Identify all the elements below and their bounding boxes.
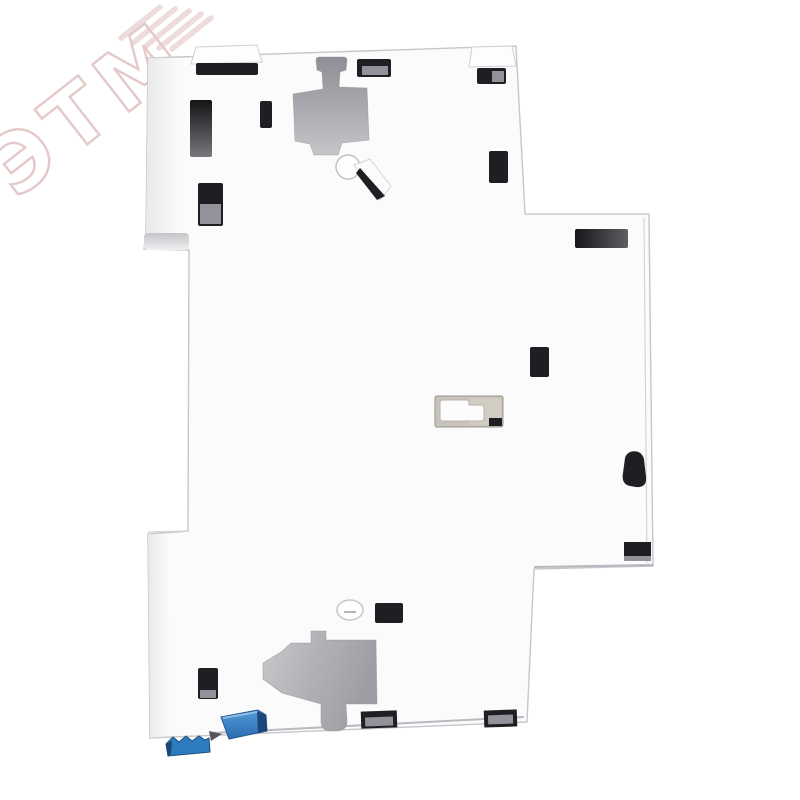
slot-lower-left-floor [200,690,216,698]
din-device-side-view: ЭТМ [0,0,800,800]
slot-top-center-floor [362,66,388,75]
din-clip-serrated [166,736,210,756]
slot-bottom-right [484,709,518,727]
slot-extension-mid [530,347,549,377]
slot-upper-right [489,151,508,183]
slot-top-center [357,59,391,77]
mounting-hole [623,451,646,487]
device-body [144,46,653,738]
body-shading-left-lower [148,533,169,738]
top-clip-left [191,45,262,75]
slot-bottom-center [361,710,398,728]
slot-left-mid [198,183,223,226]
slot-lower-left [198,668,218,699]
slot-upper-left [190,100,212,157]
slot-bottom-mid [375,603,403,623]
slot-left-mid-floor [200,204,221,224]
top-clip-right-tab [469,46,516,67]
body-shading-left-upper [146,56,180,233]
latch-notch [489,418,502,426]
slot-bottom-center-floor [365,717,393,727]
top-clip-left-slot [196,63,258,75]
slot-extension-top [575,229,628,248]
corner-notch-floor [624,556,651,561]
product-photo: ЭТМ [0,0,800,800]
slot-upper-small [260,101,272,128]
top-clip-left-tab [191,45,262,64]
rivet-pin-bottom [337,600,363,620]
side-flange [144,233,189,250]
corner-notch [624,542,651,561]
latch-assembly [435,396,503,427]
slot-bottom-right-floor [488,715,513,725]
top-clip-right-slot-floor [492,71,504,82]
